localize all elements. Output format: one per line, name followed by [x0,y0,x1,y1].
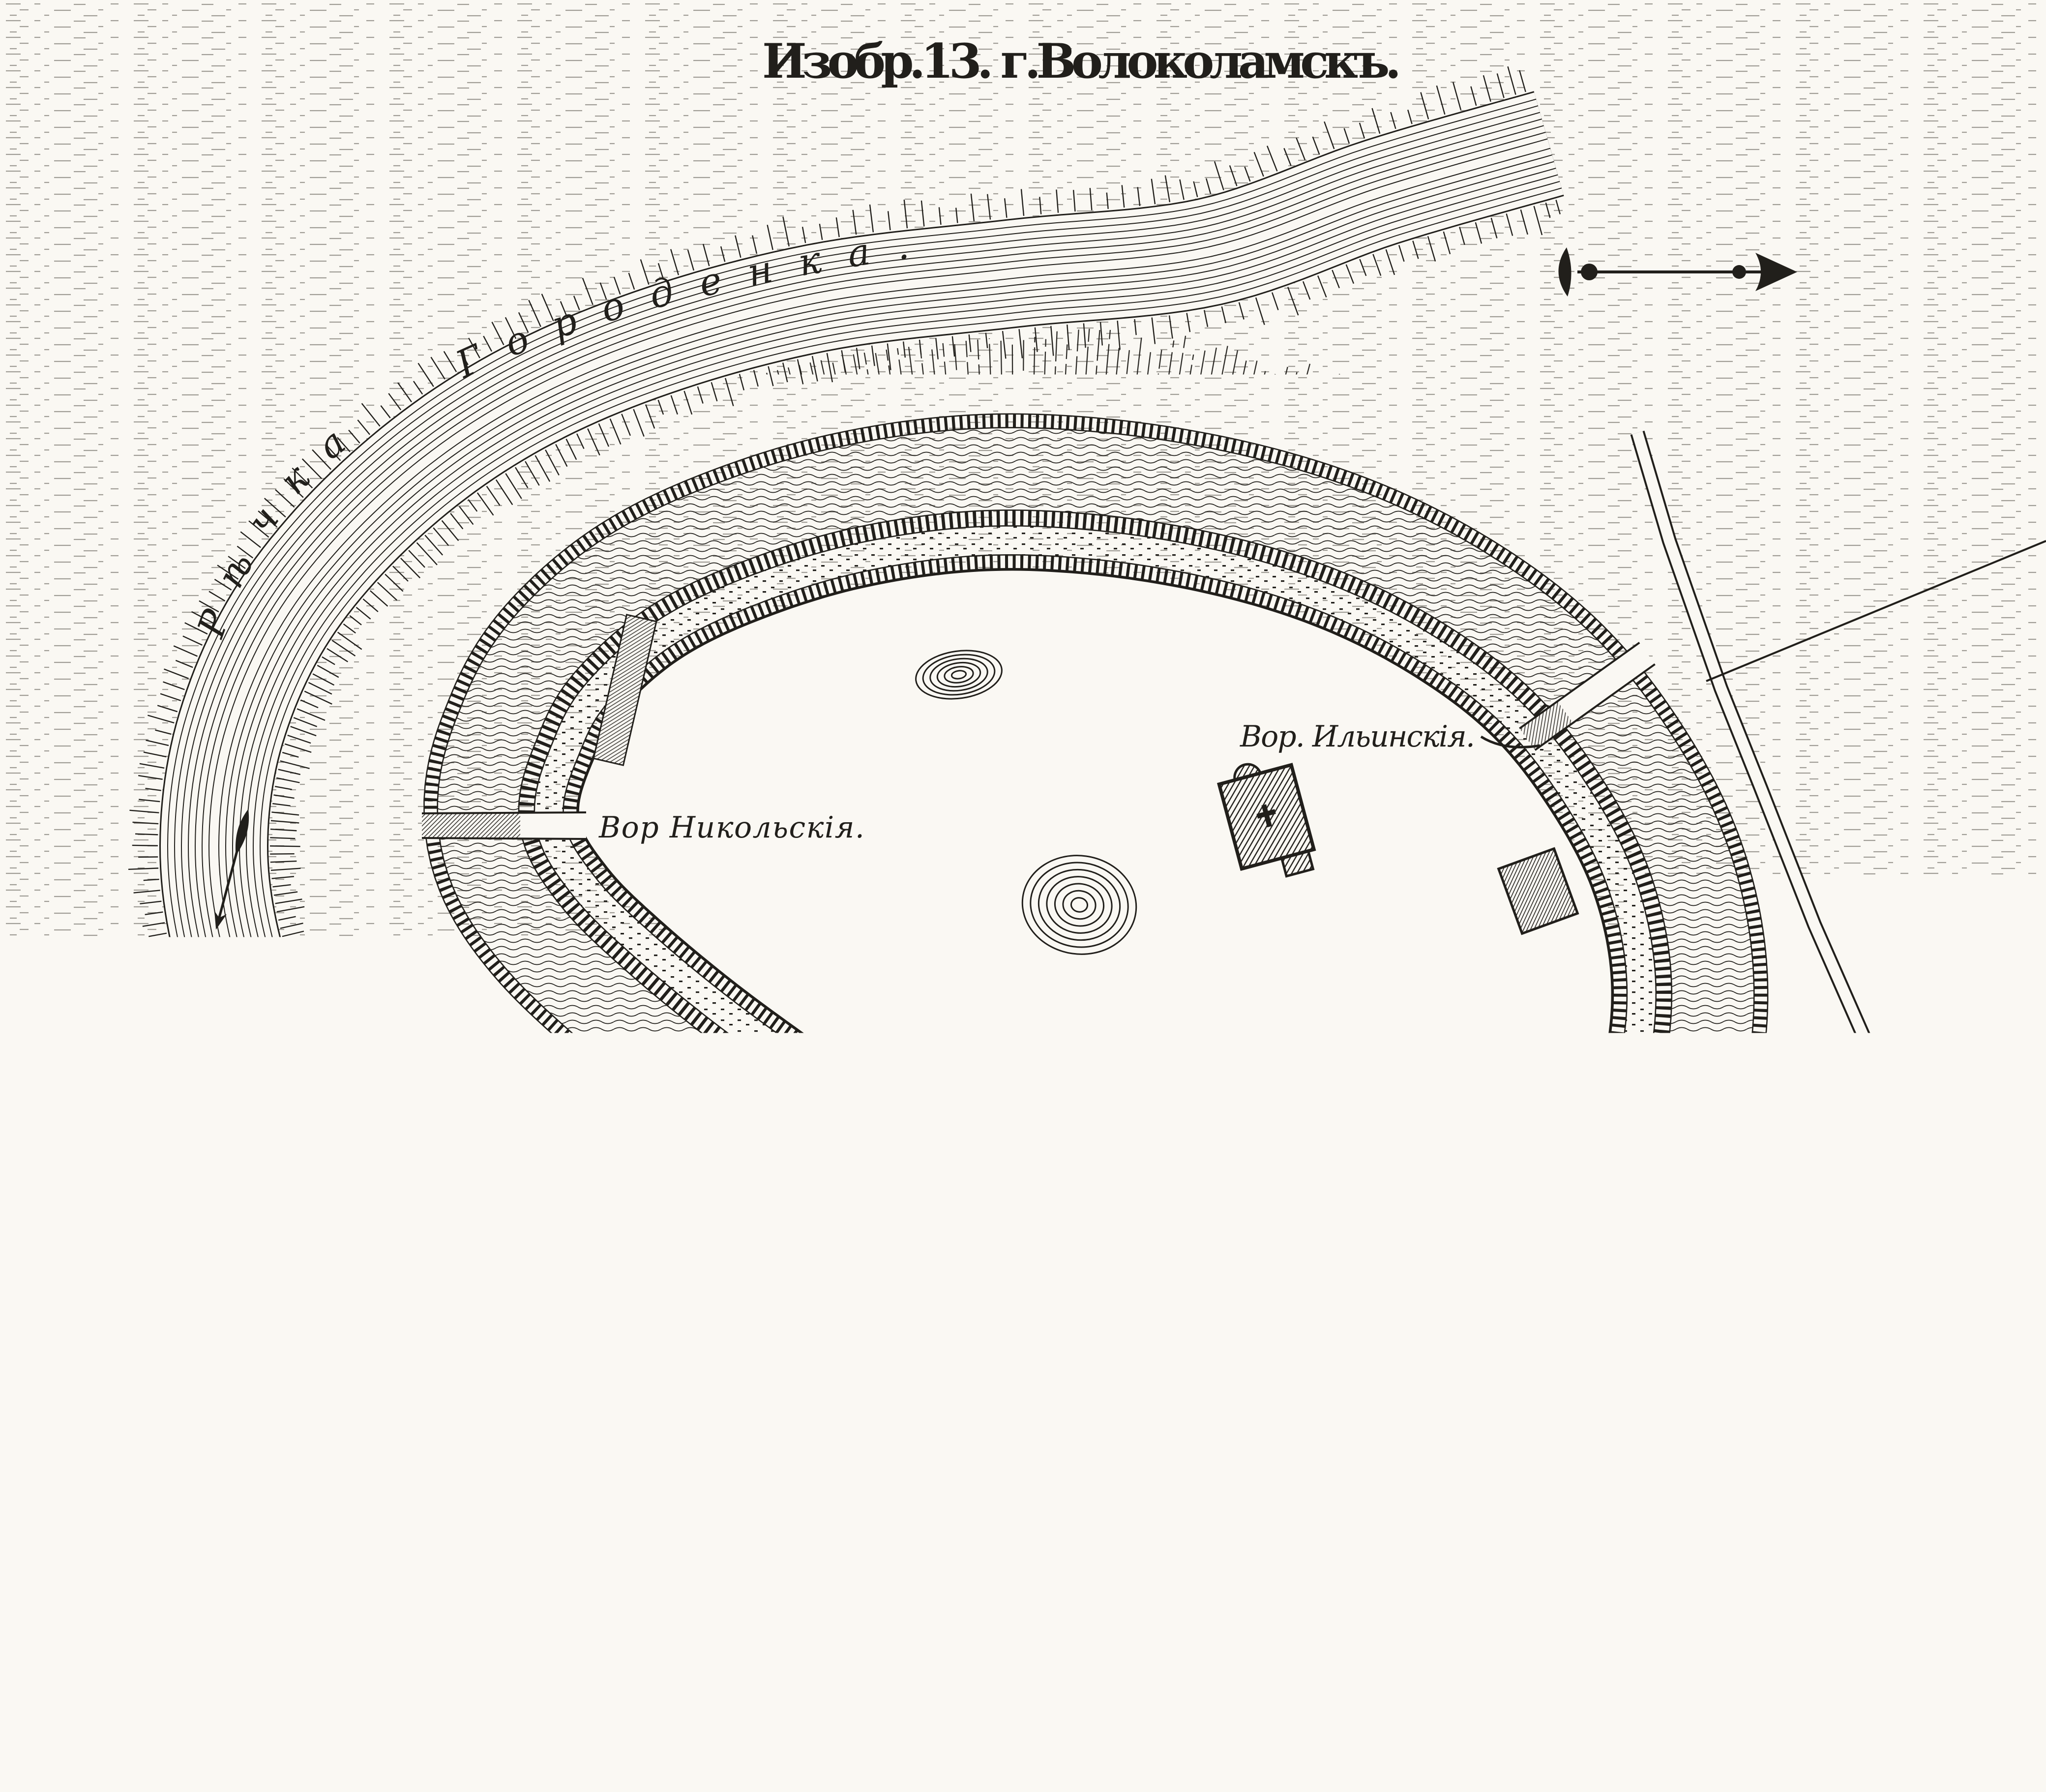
engraving-page: Изобр.13. г.Волоколамскъ. Рѣчка Городенк… [0,0,2046,1792]
page-title: Изобр.13. г.Волоколамскъ. [762,33,1401,89]
gate-ilyinskaya-label: Вор. Ильинскія. [1240,719,1475,754]
archive-caption: Изъ Архива Инженернаго Департамента. [1094,1701,1763,1737]
gate-nikolskaya-label: Вор Никольскія. [598,810,864,845]
causeway-nikolskaya [422,812,586,839]
volokolamsk-plan: Изобр.13. г.Волоколамскъ. Рѣчка Городенк… [0,0,2046,1792]
